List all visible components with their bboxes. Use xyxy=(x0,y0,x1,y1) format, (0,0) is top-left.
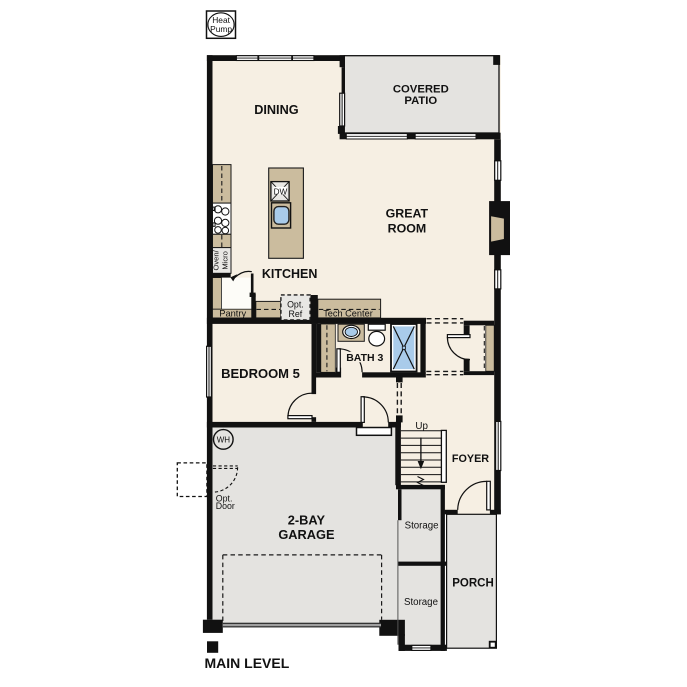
svg-text:Tech Center: Tech Center xyxy=(323,309,373,319)
svg-text:Ref: Ref xyxy=(289,309,303,319)
svg-text:Micro: Micro xyxy=(220,251,229,270)
svg-text:KITCHEN: KITCHEN xyxy=(262,267,318,281)
svg-text:WH: WH xyxy=(217,435,231,444)
svg-text:ROOM: ROOM xyxy=(388,222,427,236)
svg-text:COVERED: COVERED xyxy=(393,84,449,96)
svg-text:GREAT: GREAT xyxy=(386,206,429,220)
svg-text:BEDROOM 5: BEDROOM 5 xyxy=(221,366,300,381)
svg-text:PORCH: PORCH xyxy=(452,577,494,589)
svg-text:PATIO: PATIO xyxy=(404,95,437,107)
svg-text:DW: DW xyxy=(274,187,288,196)
svg-text:Up: Up xyxy=(415,421,428,432)
svg-text:BATH 3: BATH 3 xyxy=(346,352,383,364)
svg-text:Oven/: Oven/ xyxy=(212,249,221,270)
svg-text:Storage: Storage xyxy=(404,597,438,608)
svg-text:Storage: Storage xyxy=(405,520,439,531)
svg-text:DINING: DINING xyxy=(254,103,299,117)
svg-text:Pump: Pump xyxy=(210,24,232,34)
svg-text:Pantry: Pantry xyxy=(219,308,246,318)
svg-text:GARAGE: GARAGE xyxy=(278,527,335,542)
svg-text:Door: Door xyxy=(216,501,235,511)
svg-text:FOYER: FOYER xyxy=(452,453,489,465)
svg-text:2-BAY: 2-BAY xyxy=(288,512,326,527)
svg-text:MAIN LEVEL: MAIN LEVEL xyxy=(205,655,290,671)
